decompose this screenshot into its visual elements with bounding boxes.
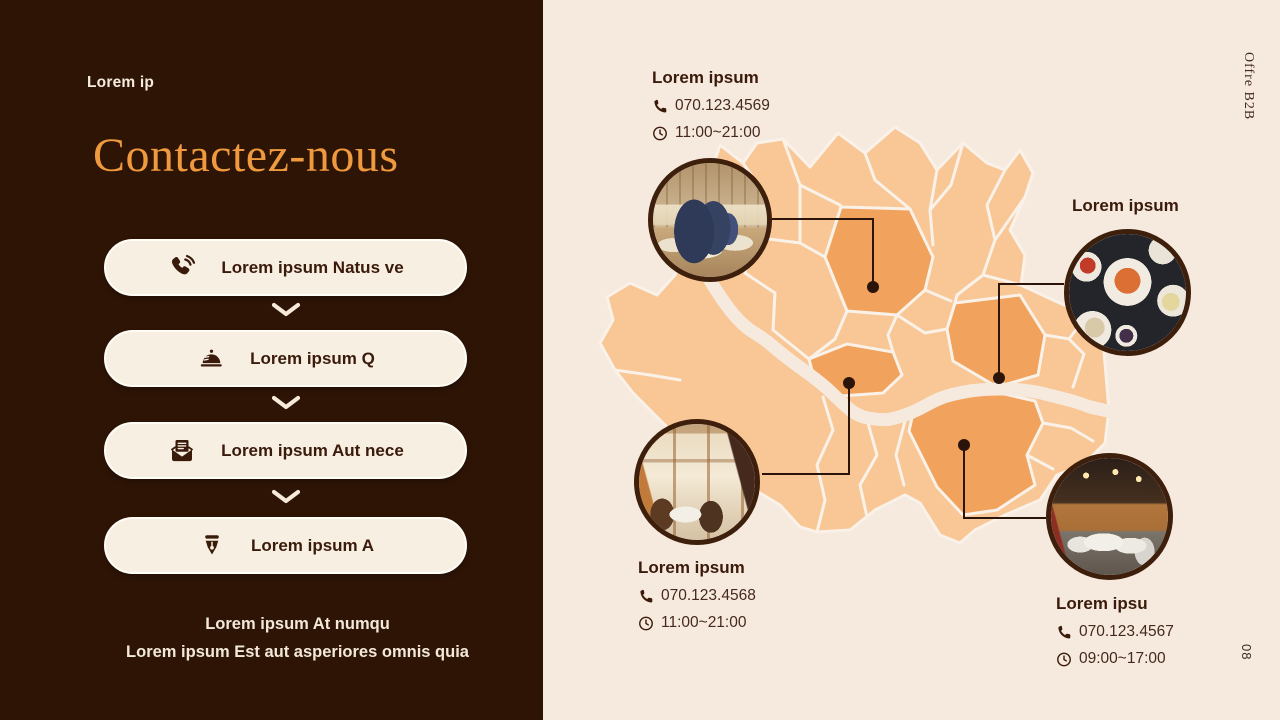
location-hours-row: 11:00~21:00 bbox=[652, 124, 770, 142]
map-marker bbox=[993, 372, 1005, 384]
map-marker bbox=[867, 281, 879, 293]
location-card-1: Lorem ipsum 070.123.4569 11:00~21:00 bbox=[652, 68, 770, 142]
location-name: Lorem ipsum bbox=[652, 68, 770, 88]
page-title: Contactez-nous bbox=[93, 128, 399, 183]
bistro-photo bbox=[639, 424, 755, 540]
pen-nib-icon bbox=[197, 531, 227, 561]
footer-note-line2: Lorem ipsum Est aut asperiores omnis qui… bbox=[60, 638, 535, 666]
map-marker bbox=[843, 377, 855, 389]
eyebrow-label: Lorem ip bbox=[87, 74, 154, 92]
vertical-edge-label: Offre B2B bbox=[1240, 52, 1256, 120]
menu-item-pen[interactable]: Lorem ipsum A bbox=[104, 517, 467, 574]
district-highlight bbox=[825, 207, 933, 315]
location-card-4: Lorem ipsu 070.123.4567 09:00~17:00 bbox=[1056, 594, 1174, 668]
chevron-down-icon bbox=[271, 395, 301, 411]
location-card-3: Lorem ipsum 070.123.4568 11:00~21:00 bbox=[638, 558, 756, 632]
location-phone: 070.123.4569 bbox=[675, 97, 770, 115]
footer-note: Lorem ipsum At numqu Lorem ipsum Est aut… bbox=[60, 610, 535, 666]
food-plates-photo bbox=[1069, 234, 1186, 351]
phone-handset-icon bbox=[1056, 624, 1072, 641]
cloche-icon bbox=[196, 344, 226, 374]
location-hours: 11:00~21:00 bbox=[675, 124, 760, 142]
chevron-down-icon bbox=[271, 489, 301, 505]
mail-icon bbox=[167, 436, 197, 466]
location-hours: 11:00~21:00 bbox=[661, 614, 746, 632]
location-phone-row: 070.123.4569 bbox=[652, 97, 770, 115]
location-phone: 070.123.4567 bbox=[1079, 623, 1174, 641]
location-name: Lorem ipsum bbox=[638, 558, 756, 578]
location-phone-row: 070.123.4567 bbox=[1056, 623, 1174, 641]
location-hours-row: 09:00~17:00 bbox=[1056, 650, 1174, 668]
location-phone: 070.123.4568 bbox=[661, 587, 756, 605]
phone-handset-icon bbox=[638, 588, 654, 605]
location-card-2: Lorem ipsum bbox=[1072, 196, 1179, 220]
photo-circle-office bbox=[1046, 453, 1173, 580]
dining-room-photo bbox=[653, 163, 767, 277]
clock-icon bbox=[638, 615, 654, 632]
location-phone-row: 070.123.4568 bbox=[638, 587, 756, 605]
chevron-down-icon bbox=[271, 302, 301, 318]
menu-item-label: Lorem ipsum Natus ve bbox=[221, 258, 403, 278]
clock-icon bbox=[652, 125, 668, 142]
photo-circle-dining-room bbox=[648, 158, 772, 282]
map-marker bbox=[958, 439, 970, 451]
slide-canvas: Lorem ip Contactez-nous Lorem ipsum Natu… bbox=[0, 0, 1280, 720]
menu-item-label: Lorem ipsum Aut nece bbox=[221, 441, 404, 461]
footer-note-line1: Lorem ipsum At numqu bbox=[60, 610, 535, 638]
location-name: Lorem ipsum bbox=[1072, 196, 1179, 216]
menu-item-phone[interactable]: Lorem ipsum Natus ve bbox=[104, 239, 467, 296]
location-name: Lorem ipsu bbox=[1056, 594, 1174, 614]
location-hours: 09:00~17:00 bbox=[1079, 650, 1166, 668]
left-panel: Lorem ip Contactez-nous Lorem ipsum Natu… bbox=[0, 0, 543, 720]
menu-item-label: Lorem ipsum A bbox=[251, 536, 374, 556]
menu-item-menu[interactable]: Lorem ipsum Q bbox=[104, 330, 467, 387]
phone-ring-icon bbox=[167, 253, 197, 283]
phone-handset-icon bbox=[652, 98, 668, 115]
clock-icon bbox=[1056, 651, 1072, 668]
page-number: 08 bbox=[1239, 644, 1254, 660]
location-hours-row: 11:00~21:00 bbox=[638, 614, 756, 632]
photo-circle-food-plates bbox=[1064, 229, 1191, 356]
menu-item-mail[interactable]: Lorem ipsum Aut nece bbox=[104, 422, 467, 479]
office-photo bbox=[1051, 458, 1168, 575]
photo-circle-bistro bbox=[634, 419, 760, 545]
menu-item-label: Lorem ipsum Q bbox=[250, 349, 375, 369]
